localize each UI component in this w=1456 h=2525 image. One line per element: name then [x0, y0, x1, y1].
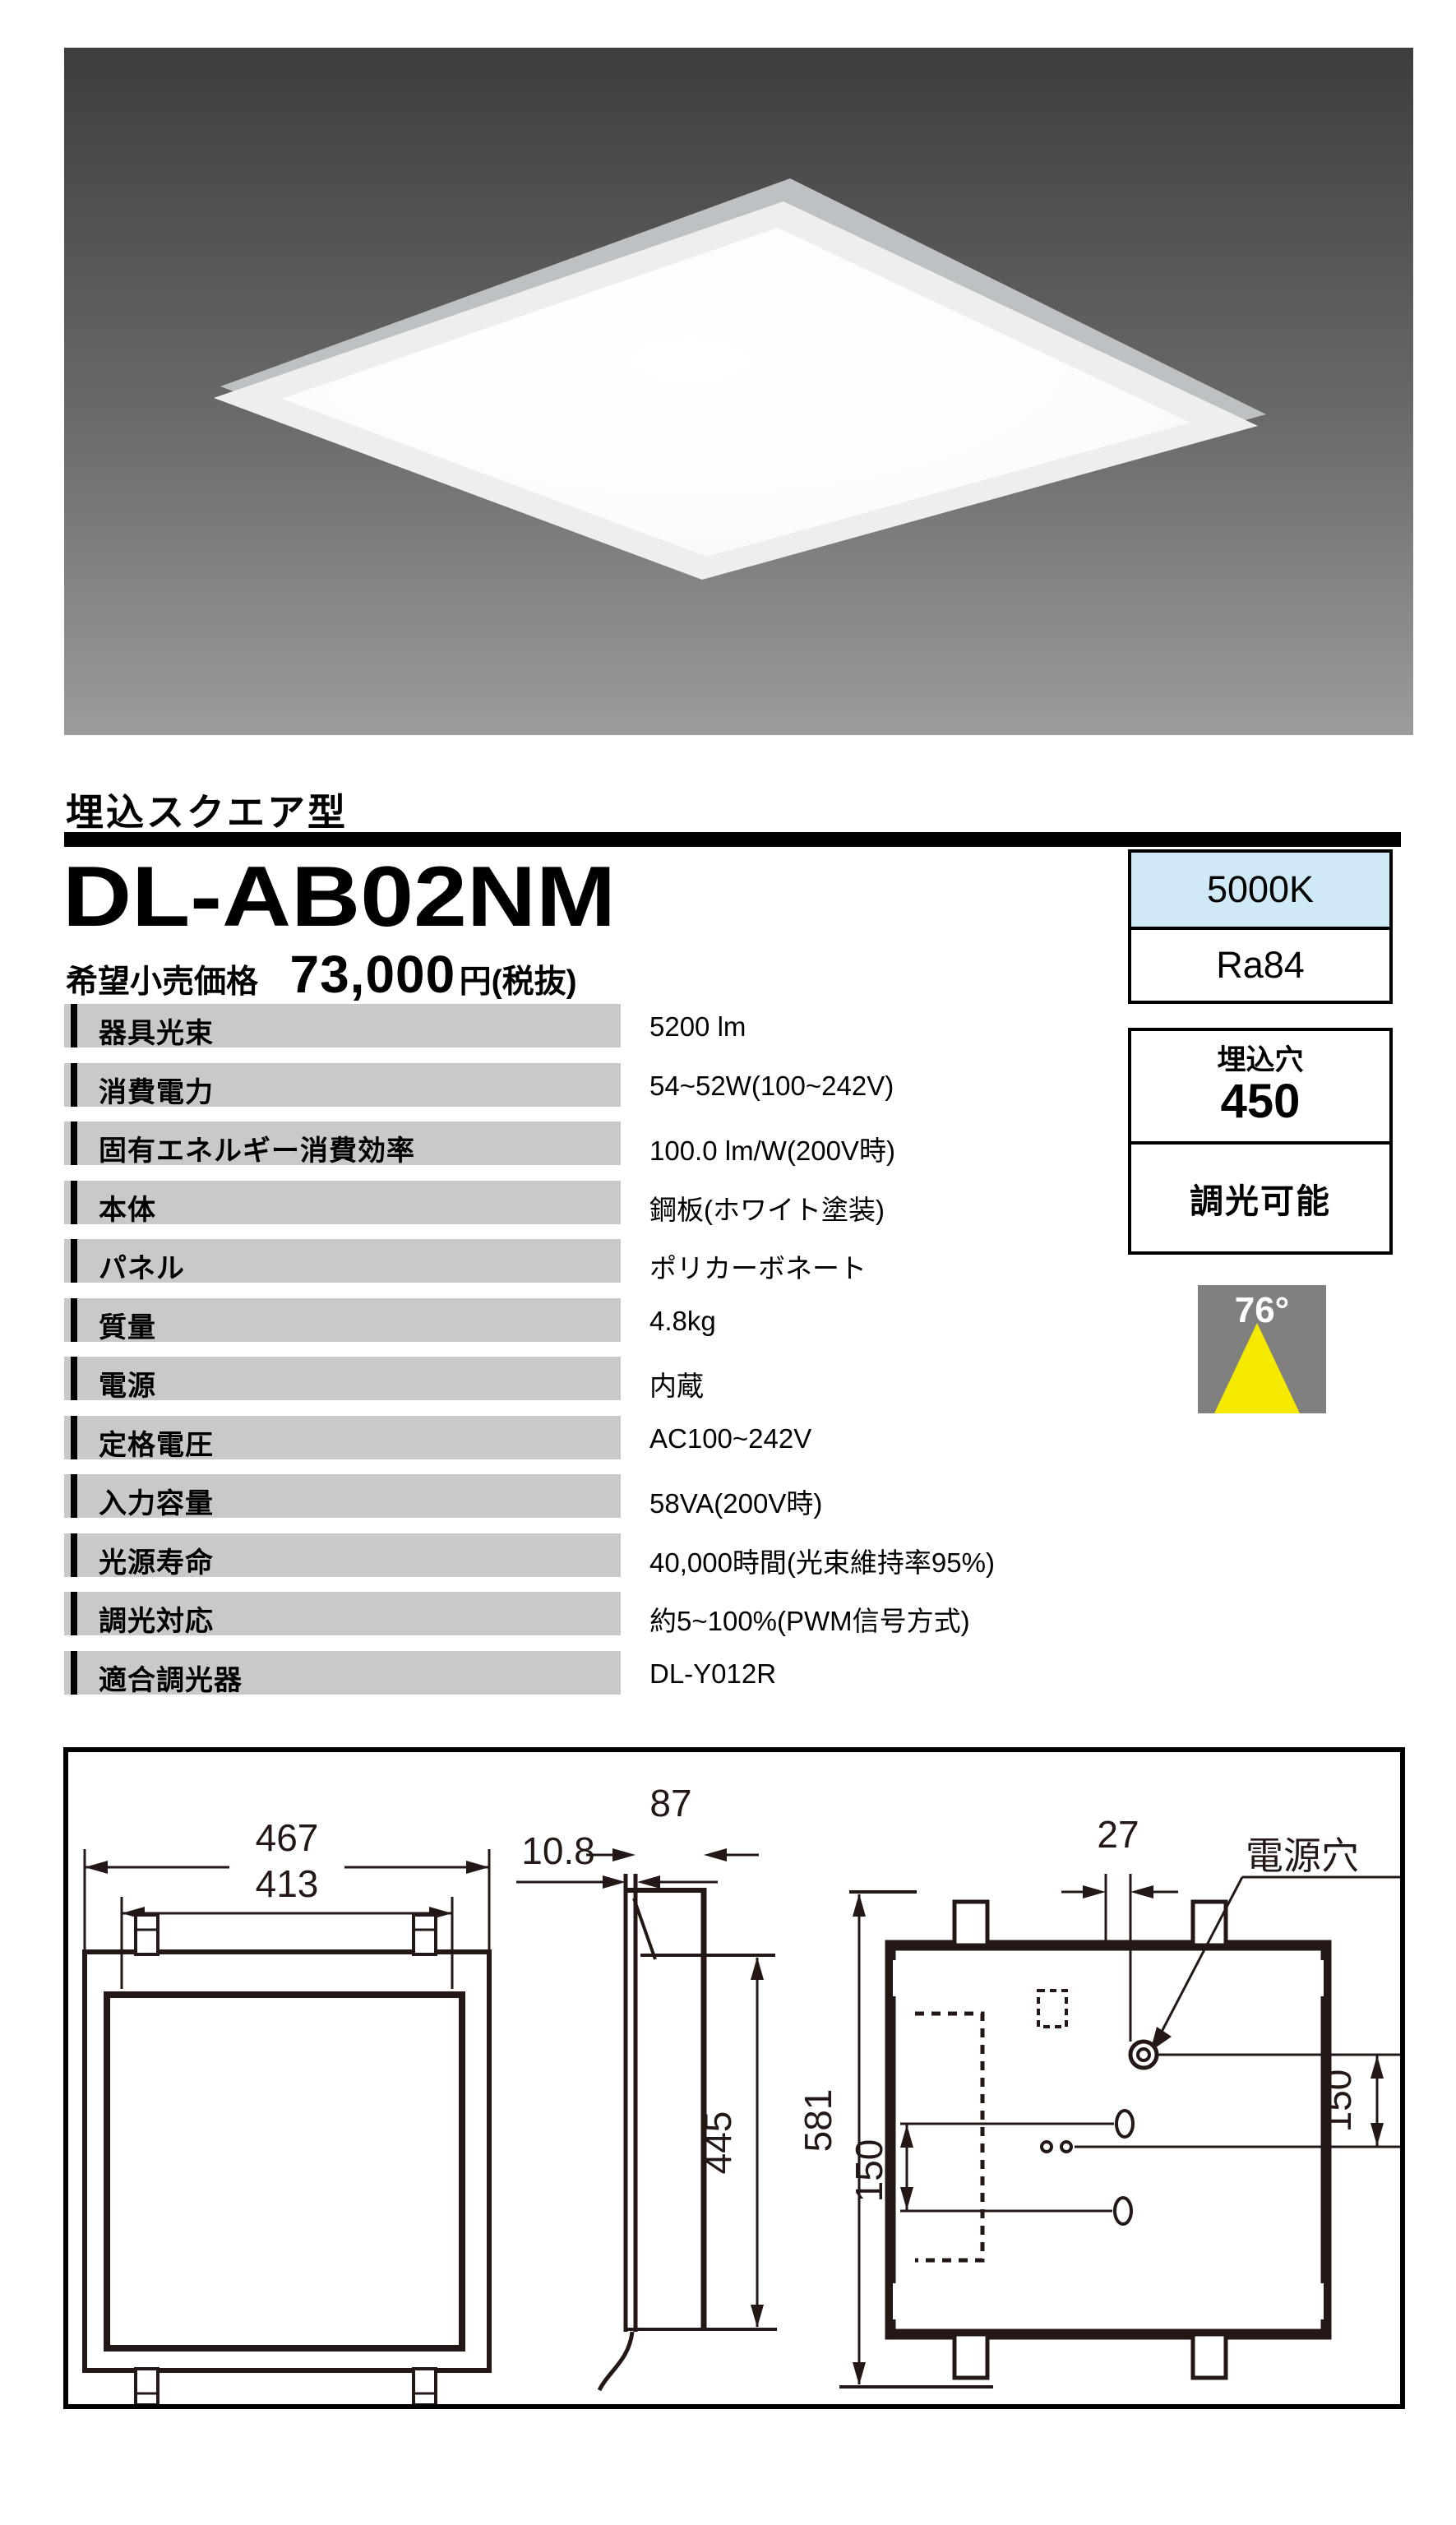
row-tick: [71, 1533, 77, 1577]
row-tick: [71, 1357, 77, 1400]
knockout-dashed: [1038, 1991, 1066, 2027]
price-label: 希望小売価格: [66, 964, 258, 1000]
cutout-label: 埋込穴: [1217, 1045, 1303, 1077]
beam-angle-value: 76°: [1198, 1290, 1326, 1331]
spec-value: 40,000時間(光束維持率95%): [649, 1541, 995, 1580]
side-view: 10.8 87 445: [516, 1782, 777, 2390]
dimension-drawing-svg: 467 413 10.8: [68, 1752, 1400, 2404]
spec-value: 4.8kg: [649, 1306, 716, 1337]
row-tick: [71, 1298, 77, 1342]
dim-side-thickness-label: 10.8: [521, 1829, 595, 1872]
table-row: 消費電力 54~52W(100~242V): [64, 1063, 1100, 1122]
spec-label: 定格電圧: [99, 1422, 214, 1463]
spec-sheet-page: 埋込スクエア型 DL-AB02NM 希望小売価格 73,000 円(税抜) 器具…: [0, 0, 1456, 2525]
spec-value: 内蔵: [649, 1364, 704, 1404]
spec-label: 固有エネルギー消費効率: [99, 1128, 415, 1168]
table-row: 質量 4.8kg: [64, 1298, 1100, 1357]
category-title: 埋込スクエア型: [66, 783, 348, 837]
back-view: 581 27 電源穴: [797, 1813, 1400, 2387]
power-cord: [599, 2332, 632, 2390]
row-tick: [71, 1121, 77, 1165]
spec-label: 電源: [99, 1363, 156, 1404]
table-row: 定格電圧 AC100~242V: [64, 1416, 1100, 1475]
spec-value: 鋼板(ホワイト塗装): [649, 1188, 885, 1228]
price-value: 73,000: [289, 945, 455, 1004]
dim-back-overall-label: 581: [797, 2089, 839, 2153]
spec-value: 約5~100%(PWM信号方式): [649, 1599, 970, 1639]
table-row: パネル ポリカーボネート: [64, 1239, 1100, 1298]
row-tick: [71, 1416, 77, 1459]
cutout-badge: 埋込穴 450: [1131, 1031, 1389, 1145]
color-temp-badge: 5000K: [1131, 853, 1389, 930]
dim-front-inner-label: 413: [256, 1862, 319, 1905]
cri-badge: Ra84: [1131, 930, 1389, 1001]
dim-back-offset-label: 27: [1097, 1813, 1139, 1856]
table-row: 適合調光器 DL-Y012R: [64, 1651, 1100, 1710]
power-hole-label: 電源穴: [1246, 1834, 1359, 1877]
spec-value: ポリカーボネート: [649, 1246, 867, 1286]
spec-label: 消費電力: [99, 1070, 214, 1110]
spec-value: 100.0 lm/W(200V時): [649, 1129, 895, 1168]
table-row: 固有エネルギー消費効率 100.0 lm/W(200V時): [64, 1121, 1100, 1181]
spec-label: 適合調光器: [99, 1658, 243, 1698]
price-suffix: 円(税抜): [460, 964, 577, 1000]
table-row: 入力容量 58VA(200V時): [64, 1474, 1100, 1533]
row-tick: [71, 1651, 77, 1695]
table-row: 調光対応 約5~100%(PWM信号方式): [64, 1592, 1100, 1651]
spec-value: 5200 lm: [649, 1011, 746, 1043]
power-hole: [1130, 2042, 1157, 2068]
model-number: DL-AB02NM: [62, 849, 616, 946]
front-view: 467 413: [85, 1816, 489, 2404]
spec-label: 調光対応: [99, 1598, 214, 1639]
driver-outline-dashed: [915, 2014, 982, 2260]
price-row: 希望小売価格 73,000 円(税抜): [66, 944, 577, 1005]
wire-hole: [1116, 2111, 1133, 2137]
spec-value: DL-Y012R: [649, 1658, 776, 1690]
beam-angle-icon: 76°: [1198, 1285, 1326, 1413]
table-row: 器具光束 5200 lm: [64, 1004, 1100, 1063]
spec-table: 器具光束 5200 lm 消費電力 54~52W(100~242V) 固有エネル…: [64, 1004, 1100, 1709]
dimension-drawing: 467 413 10.8: [63, 1747, 1405, 2409]
spec-label: 質量: [99, 1305, 156, 1345]
spec-label: 器具光束: [99, 1010, 214, 1051]
row-tick: [71, 1004, 77, 1047]
row-tick: [71, 1474, 77, 1518]
spec-value: AC100~242V: [649, 1423, 811, 1454]
row-tick: [71, 1181, 77, 1224]
table-row: 電源 内蔵: [64, 1357, 1100, 1416]
color-temp-cri-box: 5000K Ra84: [1128, 849, 1393, 1004]
dim-back-left-spacing-label: 150: [848, 2139, 890, 2203]
wire-hole: [1115, 2198, 1131, 2224]
spec-label: 本体: [99, 1187, 156, 1228]
row-tick: [71, 1063, 77, 1107]
product-photo-render: [64, 48, 1413, 735]
dim-side-depth-label: 87: [649, 1782, 691, 1824]
table-row: 光源寿命 40,000時間(光束維持率95%): [64, 1533, 1100, 1593]
row-tick: [71, 1239, 77, 1283]
spec-label: パネル: [99, 1246, 185, 1286]
spec-label: 入力容量: [99, 1481, 214, 1521]
row-tick: [71, 1592, 77, 1635]
dim-side-height-label: 445: [696, 2111, 739, 2175]
product-photo: [64, 48, 1413, 735]
cutout-dimmable-box: 埋込穴 450 調光可能: [1128, 1028, 1393, 1255]
beam-triangle: [1214, 1323, 1300, 1413]
cutout-value: 450: [1221, 1077, 1301, 1127]
spec-value: 58VA(200V時): [649, 1482, 822, 1521]
divider-bar: [64, 832, 1401, 847]
dim-back-right-spacing-label: 150: [1316, 2069, 1359, 2133]
table-row: 本体 鋼板(ホワイト塗装): [64, 1181, 1100, 1240]
spec-label: 光源寿命: [99, 1540, 214, 1580]
spec-value: 54~52W(100~242V): [649, 1071, 894, 1102]
dim-front-outer-label: 467: [256, 1816, 319, 1859]
dimmable-badge: 調光可能: [1131, 1145, 1389, 1251]
